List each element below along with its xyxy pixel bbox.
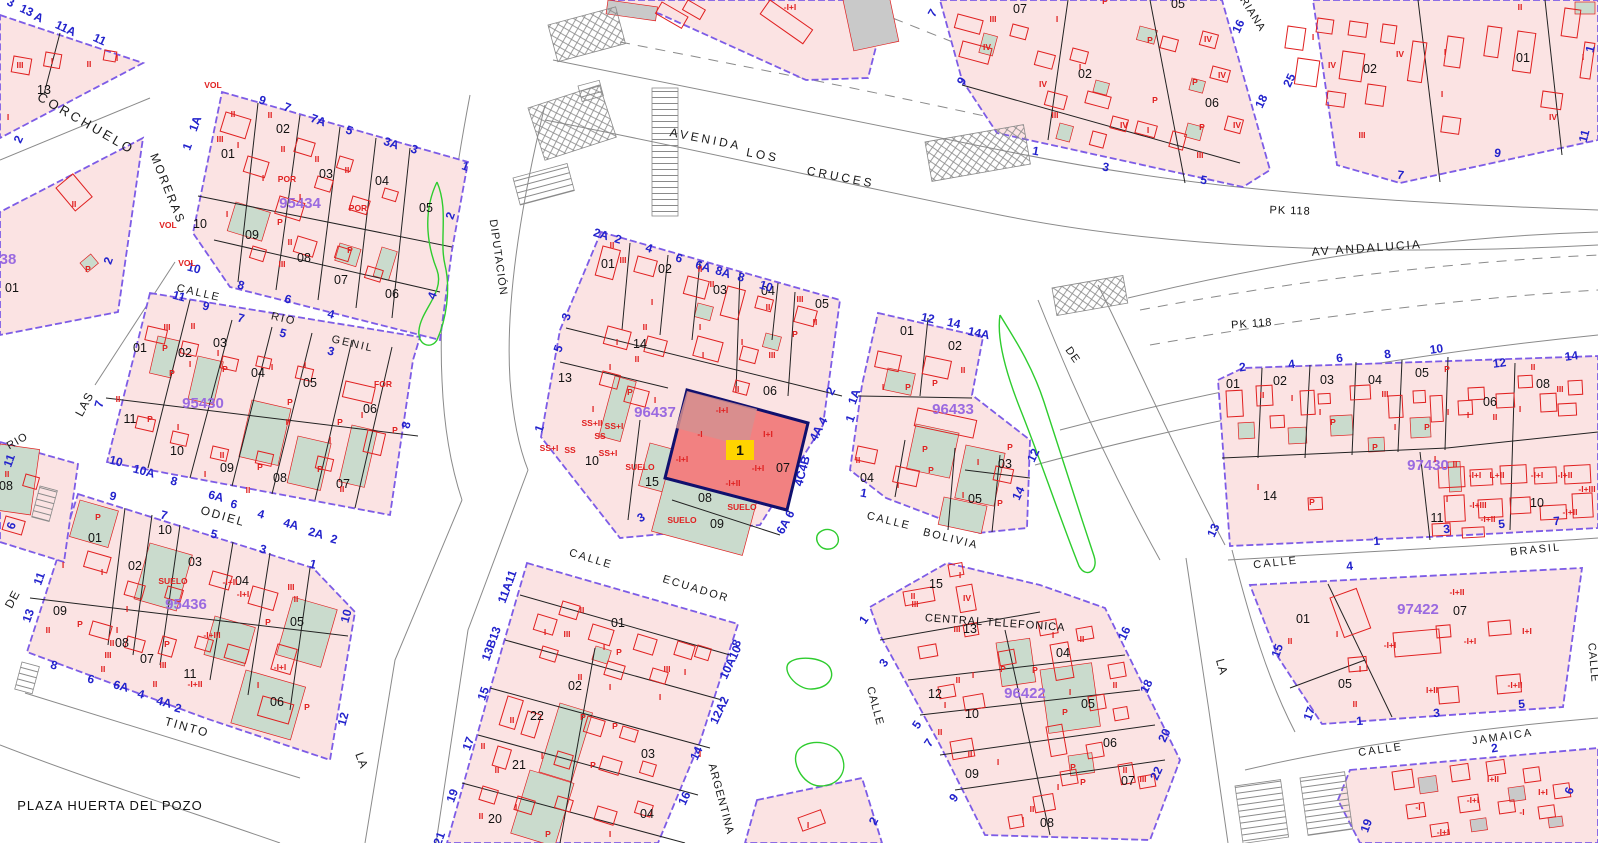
parcel-number[interactable]: 11 — [1431, 511, 1444, 525]
building-annotation: -I+I — [784, 2, 797, 12]
building-annotation: I — [699, 749, 701, 759]
parcel-number[interactable]: 03 — [713, 283, 727, 297]
city-block-triangle-95438[interactable] — [0, 138, 143, 335]
building-annotation: I — [959, 570, 961, 580]
building-annotation: I — [361, 410, 363, 420]
cadastral-map[interactable]: 1 CORCHUELOMORERASCALLERIOGENILLASRIODEO… — [0, 0, 1598, 843]
parcel-number[interactable]: 04 — [1056, 646, 1070, 660]
parcel-number[interactable]: 05 — [968, 492, 982, 506]
building-annotation: I — [654, 395, 656, 405]
building-annotation: -I — [1519, 807, 1524, 817]
parcel-number[interactable]: 03 — [1320, 373, 1334, 387]
building-annotation: P — [164, 639, 170, 649]
building-annotation: III — [104, 650, 111, 660]
city-block-ecuador[interactable] — [447, 563, 738, 843]
building-annotation: -I+II — [1558, 470, 1573, 480]
parcel-number[interactable]: 01 — [1226, 377, 1240, 391]
building-annotation: III — [1139, 774, 1146, 784]
building-annotation: II — [191, 321, 196, 331]
building-annotation: P — [928, 465, 934, 475]
parcel-number[interactable]: 05 — [303, 376, 317, 390]
building-annotation: POR — [349, 203, 367, 213]
road-edge — [1140, 255, 1598, 310]
building-annotation: II — [956, 675, 961, 685]
building-annotation: I — [51, 56, 53, 66]
building-annotation: P — [922, 444, 928, 454]
building-annotation: II — [220, 450, 225, 460]
address-number: 2 — [1238, 360, 1247, 375]
parcel-number[interactable]: 02 — [1273, 374, 1287, 388]
address-number: 5 — [909, 718, 924, 732]
address-number: 14 — [1564, 348, 1579, 364]
building-annotation: I — [262, 173, 264, 183]
building-outline — [1294, 58, 1319, 87]
parcel-number[interactable]: 08 — [1040, 816, 1054, 830]
parcel-number[interactable]: 08 — [1536, 377, 1550, 391]
building-annotation: IV — [1120, 120, 1128, 130]
parcel-number[interactable]: 08 — [0, 479, 13, 493]
address-number: 1A — [186, 114, 205, 134]
building-annotation: SUELO — [727, 502, 757, 512]
address-number: 12 — [335, 710, 352, 727]
address-number: 3 — [5, 0, 17, 10]
pedestrian-crossing — [513, 164, 574, 206]
parcel-number[interactable]: 07 — [1453, 604, 1467, 618]
parcel-number[interactable]: 07 — [334, 273, 348, 287]
block-id: 96437 — [634, 404, 676, 421]
building-annotation: III — [1381, 389, 1388, 399]
building-annotation: I — [944, 700, 946, 710]
building-annotation: P — [1372, 442, 1378, 452]
building-annotation: P — [997, 498, 1003, 508]
parcel-number[interactable]: 02 — [948, 339, 962, 353]
building-annotation: IV — [963, 593, 971, 603]
building-annotation: -I+II — [1508, 680, 1523, 690]
building-annotation: P — [905, 382, 911, 392]
parcel-number[interactable]: 09 — [53, 604, 67, 618]
pedestrian-crossing — [1235, 780, 1289, 843]
building-annotation: II — [110, 638, 115, 648]
parcel-number[interactable]: 22 — [530, 709, 544, 723]
building-annotation: II — [231, 109, 236, 119]
building-annotation: II — [1453, 459, 1458, 469]
vegetation-line — [817, 530, 839, 550]
parcel-number[interactable]: 04 — [1368, 373, 1382, 387]
building-annotation: III — [163, 322, 170, 332]
parcel-number[interactable]: 07 — [1013, 2, 1027, 16]
parcel-number[interactable]: 07 — [776, 461, 790, 475]
building-annotation: II — [1531, 362, 1536, 372]
building-annotation: II — [286, 417, 291, 427]
parcel-number[interactable]: 01 — [88, 531, 102, 545]
paved-area — [1470, 818, 1488, 832]
building-annotation: FOR — [374, 379, 392, 389]
parcel-number[interactable]: 08 — [115, 636, 129, 650]
pedestrian-crossing — [652, 88, 678, 216]
address-number: 6 — [229, 497, 239, 512]
building-annotation: III — [911, 599, 918, 609]
building-annotation: II — [315, 154, 320, 164]
building-annotation: P — [85, 264, 91, 274]
block-id: 97430 — [1407, 457, 1449, 474]
street-label: CALLE — [864, 685, 886, 727]
building-annotation: II — [510, 715, 515, 725]
patio-area — [1238, 422, 1255, 439]
parcel-number[interactable]: 06 — [385, 287, 399, 301]
road-edge — [509, 105, 545, 470]
building-annotation: I — [116, 625, 118, 635]
vegetation-line — [796, 742, 844, 786]
building-annotation: -I+I — [1464, 636, 1477, 646]
building-annotation: P — [1062, 707, 1068, 717]
parcel-number[interactable]: 01 — [1516, 51, 1530, 65]
building-annotation: I — [972, 670, 974, 680]
building-annotation: P — [1070, 762, 1076, 772]
address-number: 2A — [307, 524, 326, 542]
crosshatch-island — [1052, 275, 1128, 315]
parcel-number[interactable]: 05 — [419, 201, 433, 215]
building-annotation: I+I — [1538, 787, 1548, 797]
building-annotation: P — [1199, 122, 1205, 132]
building-annotation: -I+I — [274, 662, 287, 672]
building-annotation: I — [1257, 482, 1259, 492]
road-edge — [0, 745, 280, 843]
parcel-number[interactable]: 06 — [1103, 736, 1117, 750]
parcel-number[interactable]: 10 — [585, 454, 599, 468]
parcel-number[interactable]: 21 — [512, 758, 526, 772]
building-annotation: SS+I — [540, 443, 559, 453]
parcel-number[interactable]: 01 — [133, 341, 147, 355]
road-edge — [1098, 285, 1225, 545]
parcel-number[interactable]: 02 — [276, 122, 290, 136]
address-number: 18 — [1252, 92, 1270, 110]
parcel-number[interactable]: 04 — [375, 174, 389, 188]
parcel-number[interactable]: 03 — [213, 336, 227, 350]
address-number: 4 — [1346, 559, 1354, 574]
building-annotation: I — [101, 567, 103, 577]
parcel-number[interactable]: 05 — [290, 615, 304, 629]
map-label: PK 118 — [1231, 317, 1273, 332]
building-annotation: VOL — [204, 80, 221, 90]
parcel-number[interactable]: 10 — [193, 217, 207, 231]
building-annotation: P — [1444, 364, 1450, 374]
parcel-number[interactable]: 10 — [1530, 496, 1544, 510]
paved-area — [1508, 786, 1526, 802]
building-annotation: I — [807, 820, 809, 830]
building-annotation: -I+I — [676, 454, 689, 464]
street-label: ARGENTINA — [706, 762, 737, 836]
address-number: 3 — [1101, 160, 1110, 175]
building-annotation: I — [541, 751, 543, 761]
building-annotation: II — [479, 811, 484, 821]
building-annotation: III — [16, 60, 23, 70]
address-number: 6 — [1335, 351, 1344, 366]
address-number: 21 — [430, 830, 448, 843]
street-label: DE — [2, 588, 23, 611]
parcel-number[interactable]: 15 — [645, 475, 659, 489]
parcel-number[interactable]: 05 — [1338, 677, 1352, 691]
building-annotation: II — [856, 455, 861, 465]
building-annotation: -I+II — [726, 478, 741, 488]
pedestrian-crossing — [1300, 772, 1353, 836]
building-annotation: IV — [1328, 60, 1336, 70]
building-annotation: P — [1152, 95, 1158, 105]
parcel-number[interactable]: 08 — [698, 491, 712, 505]
parcel-number[interactable]: 05 — [1171, 0, 1185, 11]
map-label: PLAZA HUERTA DEL POZO — [17, 798, 202, 813]
vegetation-line — [787, 658, 832, 689]
patio-area — [1575, 2, 1595, 14]
parcel-number[interactable]: 07 — [140, 652, 154, 666]
parcel-number[interactable]: 01 — [900, 324, 914, 338]
building-annotation: I — [204, 469, 206, 479]
building-annotation: I — [651, 297, 653, 307]
building-annotation: -I — [697, 429, 702, 439]
building-annotation: II — [1288, 636, 1293, 646]
parcel-number[interactable]: 09 — [710, 517, 724, 531]
building-annotation: I — [882, 382, 884, 392]
building-annotation: I — [1056, 14, 1058, 24]
building-annotation: P — [337, 417, 343, 427]
address-number: 4 — [1287, 357, 1296, 372]
building-annotation: II — [246, 485, 251, 495]
address-number: 1 — [180, 141, 196, 152]
building-annotation: I — [304, 360, 306, 370]
building-annotation: II — [294, 594, 299, 604]
building-annotation: P — [932, 378, 938, 388]
building-annotation: II — [46, 625, 51, 635]
building-annotation: I — [62, 560, 64, 570]
parcel-number[interactable]: 09 — [965, 767, 979, 781]
parcel-number[interactable]: 03 — [319, 167, 333, 181]
parcel-number[interactable]: 01 — [1296, 612, 1310, 626]
building-annotation: II — [813, 317, 818, 327]
parcel-number[interactable]: 06 — [763, 384, 777, 398]
parcel-number[interactable]: 13 — [558, 371, 572, 385]
parcel-number[interactable]: 20 — [488, 812, 502, 826]
building-annotation: I — [1022, 815, 1024, 825]
building-annotation: SS+I — [605, 421, 624, 431]
building-annotation: P — [265, 617, 271, 627]
building-annotation: -I+II — [223, 577, 238, 587]
address-number: 12 — [920, 310, 936, 327]
address-number: 3 — [876, 656, 891, 670]
building-annotation: III — [563, 629, 570, 639]
parcel-number[interactable]: 14 — [1263, 489, 1277, 503]
building-annotation: III — [768, 350, 775, 360]
building-annotation: III — [1556, 384, 1563, 394]
building-annotation: P — [347, 245, 353, 255]
city-block-96433[interactable] — [850, 313, 1030, 533]
parcel-number[interactable]: 05 — [815, 297, 829, 311]
building-annotation: P — [616, 647, 622, 657]
building-annotation: I — [1444, 47, 1446, 57]
building-annotation: -I+I — [1384, 640, 1397, 650]
building-annotation: II — [578, 672, 583, 682]
building-annotation: I — [126, 604, 128, 614]
building-annotation: I — [271, 362, 273, 372]
building-annotation: II — [1123, 765, 1128, 775]
parcel-number[interactable]: 03 — [998, 457, 1012, 471]
building-annotation: P — [1032, 665, 1038, 675]
building-annotation: III — [989, 14, 996, 24]
parcel-number[interactable]: 05 — [1081, 697, 1095, 711]
building-annotation: I — [189, 359, 191, 369]
building-annotation: P — [277, 217, 283, 227]
patio-area — [1288, 427, 1307, 444]
building-annotation: IV — [1204, 34, 1212, 44]
building-annotation: II — [1030, 804, 1035, 814]
parcel-number[interactable]: 13 — [963, 622, 977, 636]
building-annotation: I — [977, 457, 979, 467]
building-annotation: P — [1080, 777, 1086, 787]
building-annotation: SS — [564, 445, 576, 455]
building-annotation: I — [1441, 89, 1443, 99]
building-annotation: P — [612, 721, 618, 731]
building-annotation: -I+II — [188, 679, 203, 689]
building-annotation: P — [317, 464, 323, 474]
building-annotation: I — [897, 480, 899, 490]
building-annotation: P — [590, 760, 596, 770]
city-block-97422[interactable] — [1250, 568, 1582, 724]
building-annotation: II — [340, 484, 345, 494]
address-number: 13 — [1204, 521, 1222, 539]
building-annotation: I — [1336, 629, 1338, 639]
street-label: CALLE — [568, 547, 614, 572]
parcel-number[interactable]: 02 — [658, 262, 672, 276]
building-annotation: I — [116, 53, 118, 63]
building-annotation: I — [659, 692, 661, 702]
address-number: 10 — [1429, 341, 1444, 357]
parcel-number[interactable]: 10 — [170, 444, 184, 458]
building-annotation: I+II — [1426, 685, 1438, 695]
building-annotation: I — [217, 348, 219, 358]
parcel-number[interactable]: 12 — [928, 687, 942, 701]
building-annotation: II — [710, 279, 715, 289]
building-annotation: III — [287, 582, 294, 592]
building-annotation: SS — [594, 431, 606, 441]
address-number: 7 — [921, 736, 936, 750]
building-annotation: I+II — [1487, 774, 1499, 784]
block-id: 96422 — [1004, 685, 1046, 702]
parcel-number[interactable]: 05 — [1415, 366, 1429, 380]
building-annotation: I — [592, 404, 594, 414]
building-annotation: P — [304, 702, 310, 712]
crosshatch-island — [925, 125, 1030, 182]
street-label: CORCHUELO — [35, 89, 138, 157]
address-number: 8 — [1383, 347, 1392, 362]
building-annotation: -I+I — [752, 463, 765, 473]
parcel-number[interactable]: 09 — [220, 461, 234, 475]
parcel-number[interactable]: 02 — [128, 559, 142, 573]
building-annotation: SS+II — [581, 418, 602, 428]
building-annotation: SS+I — [599, 448, 618, 458]
selected-parcel-label: 1 — [736, 442, 744, 458]
building-annotation: SUELO — [158, 576, 188, 586]
building-annotation: P — [1000, 664, 1006, 674]
building-annotation: II — [610, 240, 615, 250]
address-number: 6A — [207, 487, 226, 505]
building-annotation: P — [257, 462, 263, 472]
parcel-number[interactable]: 04 — [640, 807, 654, 821]
building-annotation: I — [257, 680, 259, 690]
city-block-bottom-small[interactable] — [745, 778, 882, 843]
building-annotation: I — [1447, 407, 1449, 417]
parcel-number[interactable]: 06 — [363, 402, 377, 416]
building-annotation: I — [699, 322, 701, 332]
building-annotation: VOL — [178, 258, 195, 268]
parcel-number[interactable]: 08 — [273, 471, 287, 485]
building-annotation: II — [281, 144, 286, 154]
address-number: 7 — [92, 399, 107, 409]
building-annotation: SUELO — [625, 462, 655, 472]
building-annotation: I+I — [1522, 626, 1532, 636]
parcel-number[interactable]: 01 — [5, 281, 19, 295]
building-annotation: P — [1309, 497, 1315, 507]
building-annotation: I — [1319, 407, 1321, 417]
address-number: 1 — [843, 413, 859, 424]
building-annotation: III — [663, 664, 670, 674]
parcel-number[interactable]: 01 — [601, 257, 615, 271]
parcel-number[interactable]: 03 — [188, 555, 202, 569]
parcel-number[interactable]: 06 — [270, 695, 284, 709]
street-label: AV ANDALUCIA — [1311, 237, 1422, 259]
parcel-number[interactable]: 04 — [251, 366, 265, 380]
parcel-number[interactable]: 09 — [245, 228, 259, 242]
street-label: CALLE — [866, 510, 912, 532]
address-number: 5 — [1199, 173, 1208, 188]
street-label: CRUCES — [806, 164, 876, 191]
street-label: AVENIDA — [669, 125, 743, 153]
building-annotation: II — [580, 605, 585, 615]
building-annotation: IV — [1039, 79, 1047, 89]
parcel-number[interactable]: 01 — [221, 147, 235, 161]
map-viewport[interactable]: 1 CORCHUELOMORERASCALLERIOGENILLASRIODEO… — [0, 0, 1598, 843]
building-annotation: III — [278, 259, 285, 269]
parcel-number[interactable]: 15 — [929, 577, 943, 591]
building-annotation: I — [1519, 404, 1521, 414]
building-annotation: I — [1052, 630, 1054, 640]
parcel-number[interactable]: 08 — [297, 251, 311, 265]
building-annotation: P — [162, 343, 168, 353]
parcel-number[interactable]: 02 — [1363, 62, 1377, 76]
building-annotation: II — [766, 302, 771, 312]
parcel-number[interactable]: 03 — [641, 747, 655, 761]
building-annotation: I — [1359, 664, 1361, 674]
parcel-number[interactable]: 10 — [965, 707, 979, 721]
parcel-number[interactable]: 01 — [611, 616, 625, 630]
building-annotation: -I+II — [1481, 514, 1496, 524]
building-annotation: I — [226, 209, 228, 219]
parcel-number[interactable]: 06 — [1483, 395, 1497, 409]
building-annotation: I — [609, 682, 611, 692]
parcel-number[interactable]: 14 — [633, 337, 647, 351]
parcel-number[interactable]: 06 — [1205, 96, 1219, 110]
parcel-number[interactable]: 07 — [1121, 774, 1135, 788]
parcel-number[interactable]: 13 — [37, 83, 51, 97]
parcel-number[interactable]: 02 — [178, 346, 192, 360]
parcel-number[interactable]: 04 — [860, 471, 874, 485]
parcel-number[interactable]: 10 — [158, 523, 172, 537]
parcel-number[interactable]: 11 — [124, 412, 137, 426]
building-annotation: P — [77, 619, 83, 629]
building-annotation: II — [87, 59, 92, 69]
building-annotation: I — [741, 337, 743, 347]
street-label: BRASIL — [1510, 541, 1562, 558]
address-number: 4 — [256, 507, 266, 522]
building-annotation: IV — [1233, 120, 1241, 130]
building-annotation: III — [619, 255, 626, 265]
